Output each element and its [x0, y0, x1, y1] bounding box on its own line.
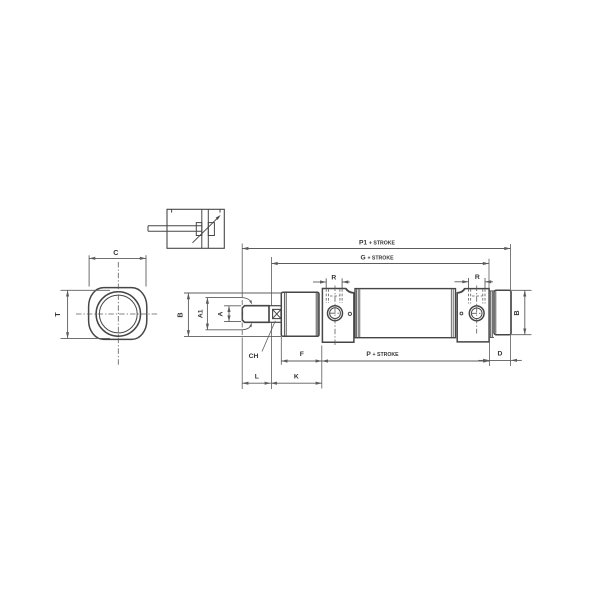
svg-text:T: T: [53, 312, 62, 317]
svg-text:A1: A1: [197, 309, 204, 318]
svg-text:P + STROKE: P + STROKE: [366, 351, 399, 358]
svg-text:A: A: [218, 311, 225, 316]
svg-text:B: B: [176, 312, 185, 317]
svg-text:D: D: [497, 351, 502, 358]
svg-text:G + STROKE: G + STROKE: [360, 254, 394, 261]
svg-text:B: B: [512, 310, 521, 315]
svg-text:C: C: [113, 248, 118, 257]
svg-text:R: R: [331, 274, 336, 281]
svg-text:R: R: [475, 274, 480, 281]
svg-text:F: F: [300, 351, 304, 358]
svg-text:L: L: [255, 373, 259, 380]
svg-text:CH: CH: [249, 353, 259, 360]
svg-text:K: K: [294, 374, 299, 381]
svg-text:P1 + STROKE: P1 + STROKE: [359, 239, 396, 246]
